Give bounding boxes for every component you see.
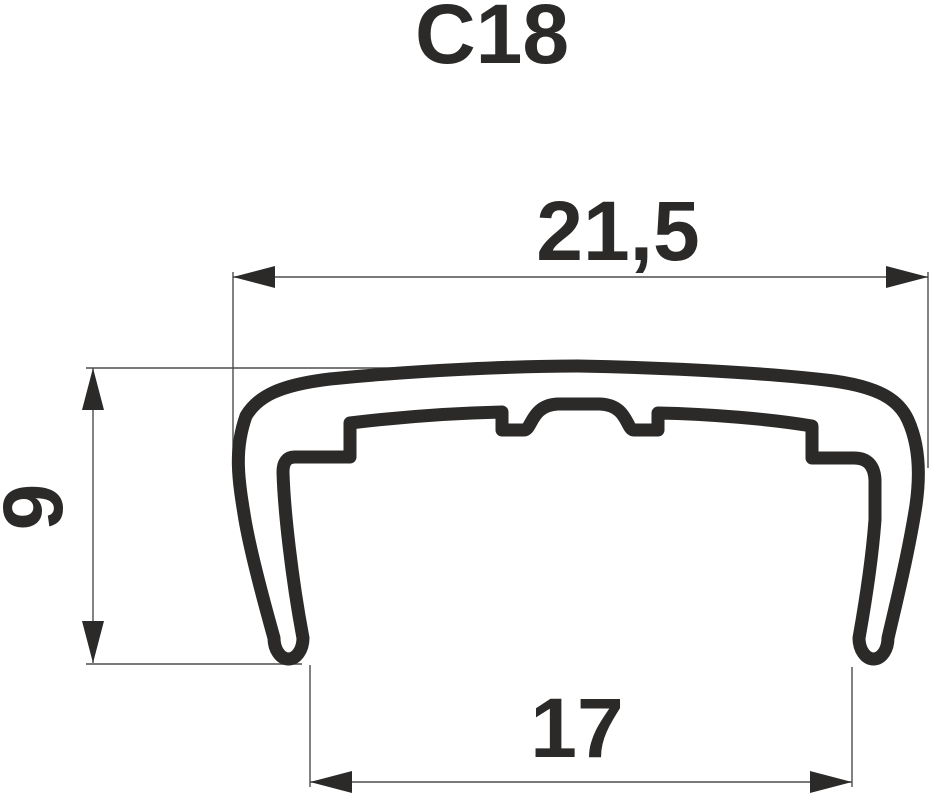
page-title: C18 bbox=[415, 0, 569, 81]
drawing-canvas: 21,5 9 17 C18 bbox=[0, 0, 934, 794]
technical-drawing: 21,5 9 17 C18 bbox=[0, 0, 934, 794]
dimension-label-bottom-width: 17 bbox=[530, 681, 623, 775]
arrowhead-right-icon bbox=[810, 771, 852, 793]
arrowhead-left-icon bbox=[310, 771, 352, 793]
profile-cross-section bbox=[238, 366, 918, 659]
arrowhead-right-icon bbox=[886, 266, 928, 288]
dimension-bottom-width: 17 bbox=[310, 665, 852, 793]
dimension-label-top-width: 21,5 bbox=[536, 184, 700, 278]
arrowhead-up-icon bbox=[82, 368, 104, 410]
arrowhead-left-icon bbox=[233, 266, 275, 288]
dimension-label-left-height: 9 bbox=[0, 484, 80, 531]
arrowhead-down-icon bbox=[82, 621, 104, 663]
